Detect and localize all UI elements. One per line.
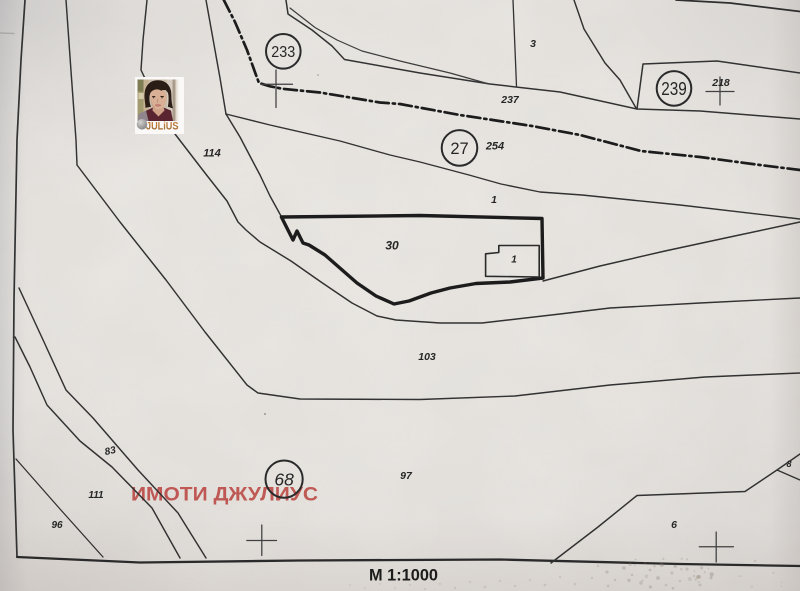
svg-text:8: 8 bbox=[786, 459, 791, 469]
svg-text:30: 30 bbox=[385, 239, 399, 253]
svg-text:1: 1 bbox=[511, 254, 517, 265]
svg-text:233: 233 bbox=[271, 44, 295, 61]
svg-text:97: 97 bbox=[400, 470, 413, 482]
svg-text:239: 239 bbox=[661, 79, 687, 99]
svg-text:111: 111 bbox=[88, 490, 104, 501]
svg-text:218: 218 bbox=[711, 77, 730, 89]
svg-text:237: 237 bbox=[500, 94, 520, 106]
svg-text:JULiUS: JULiUS bbox=[146, 120, 179, 132]
svg-text:6: 6 bbox=[671, 519, 677, 531]
svg-text:68: 68 bbox=[274, 469, 294, 489]
svg-text:96: 96 bbox=[51, 520, 63, 531]
svg-text:103: 103 bbox=[418, 351, 436, 363]
svg-text:254: 254 bbox=[485, 140, 504, 152]
svg-text:3: 3 bbox=[530, 38, 536, 50]
svg-text:114: 114 bbox=[203, 147, 221, 159]
svg-text:1: 1 bbox=[491, 194, 497, 206]
svg-text:27: 27 bbox=[450, 140, 468, 158]
svg-text:М 1:1000: М 1:1000 bbox=[369, 567, 438, 585]
